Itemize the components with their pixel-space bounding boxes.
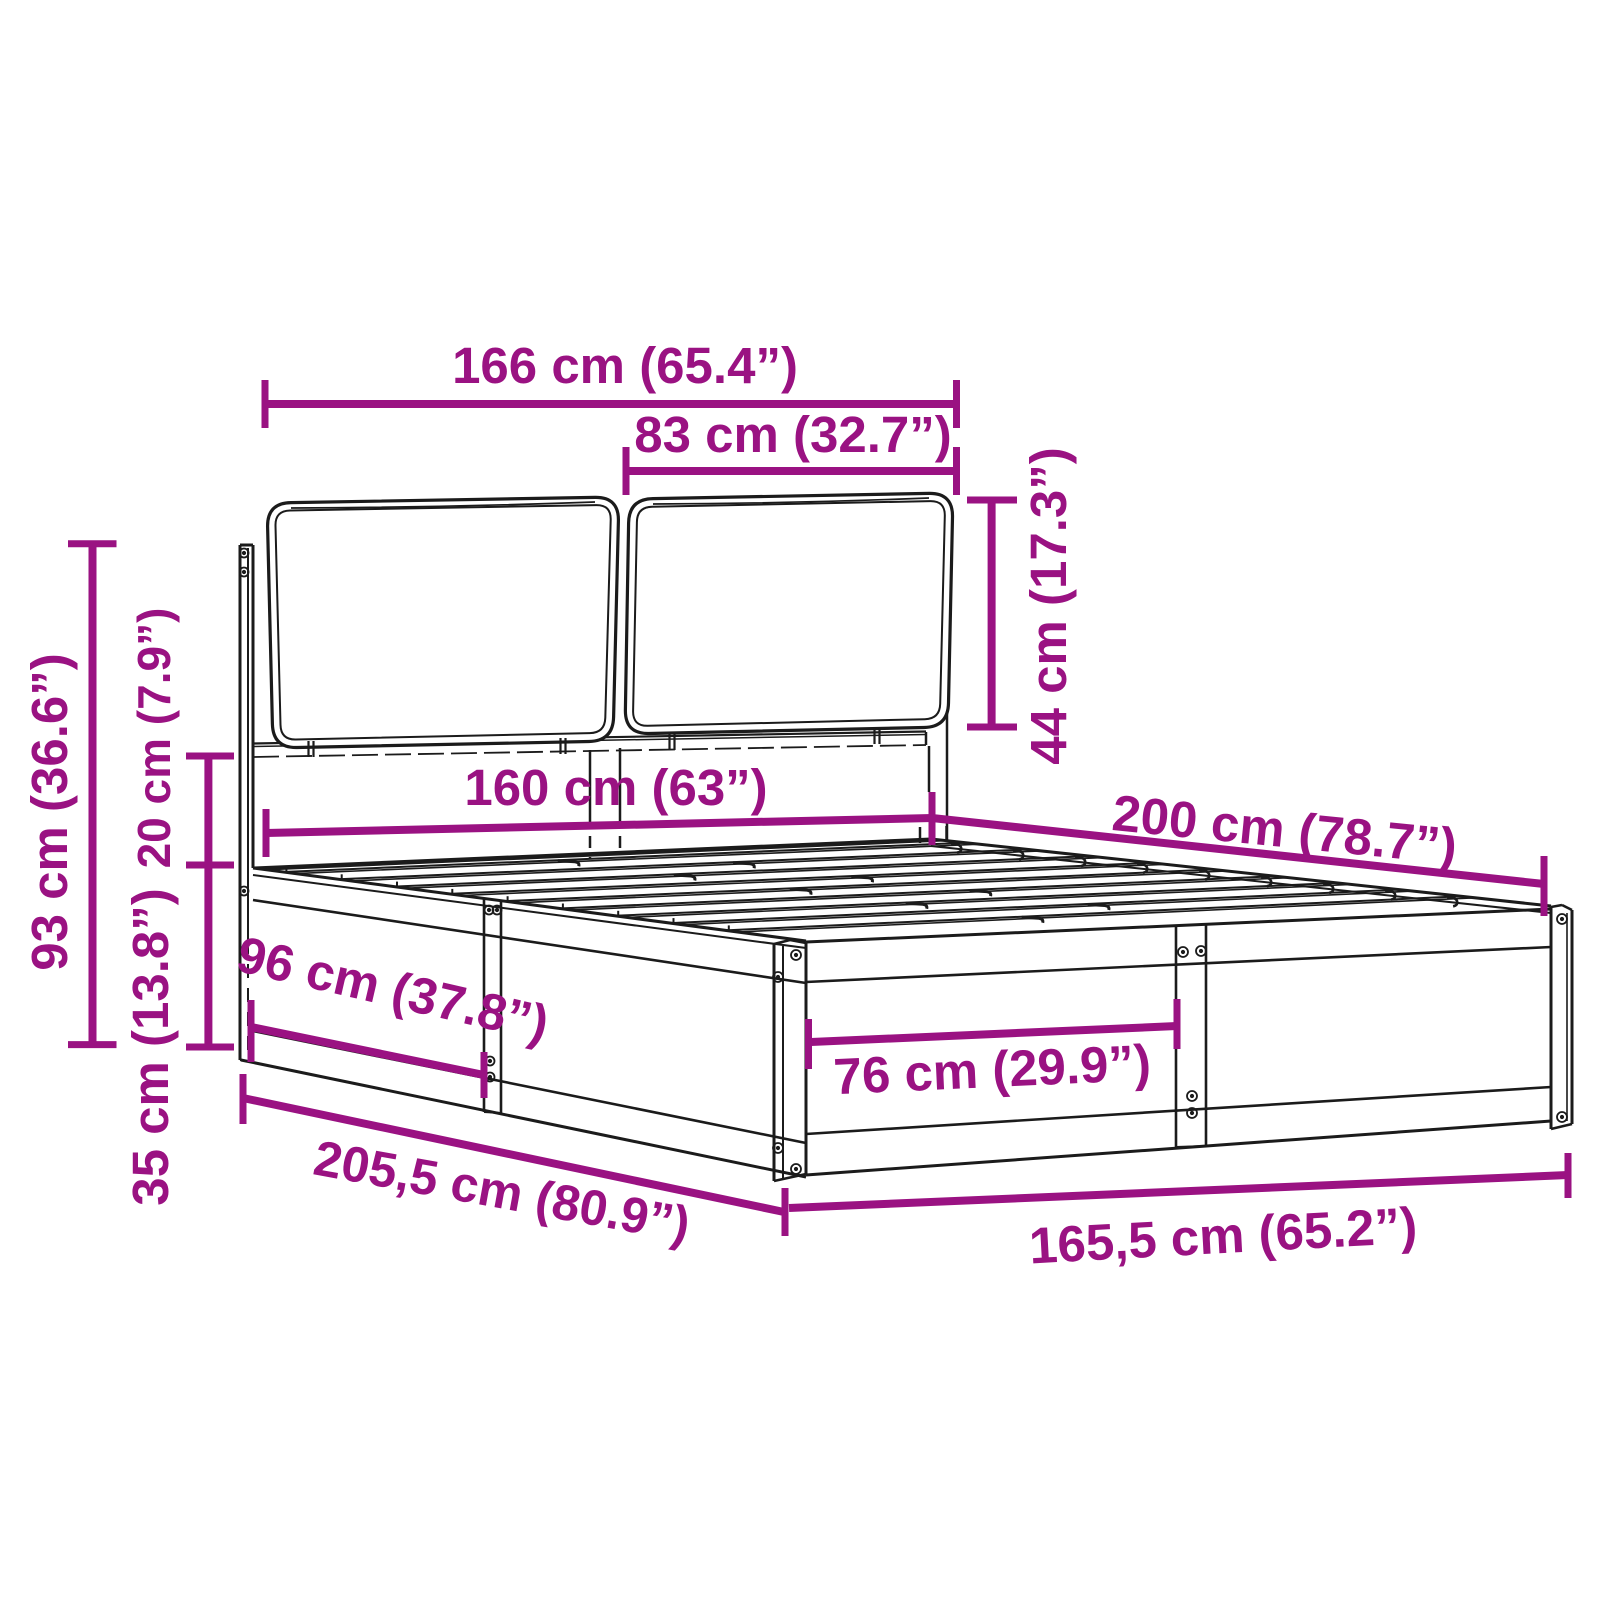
svg-text:20 cm (7.9”): 20 cm (7.9”): [128, 608, 180, 869]
svg-text:160 cm (63”): 160 cm (63”): [464, 759, 767, 816]
svg-text:83 cm (32.7”): 83 cm (32.7”): [634, 406, 952, 463]
svg-text:44 cm (17.3”): 44 cm (17.3”): [1020, 447, 1077, 765]
svg-text:93 cm (36.6”): 93 cm (36.6”): [21, 653, 78, 971]
svg-text:166 cm (65.4”): 166 cm (65.4”): [452, 337, 798, 394]
svg-text:35 cm (13.8”): 35 cm (13.8”): [122, 888, 179, 1206]
